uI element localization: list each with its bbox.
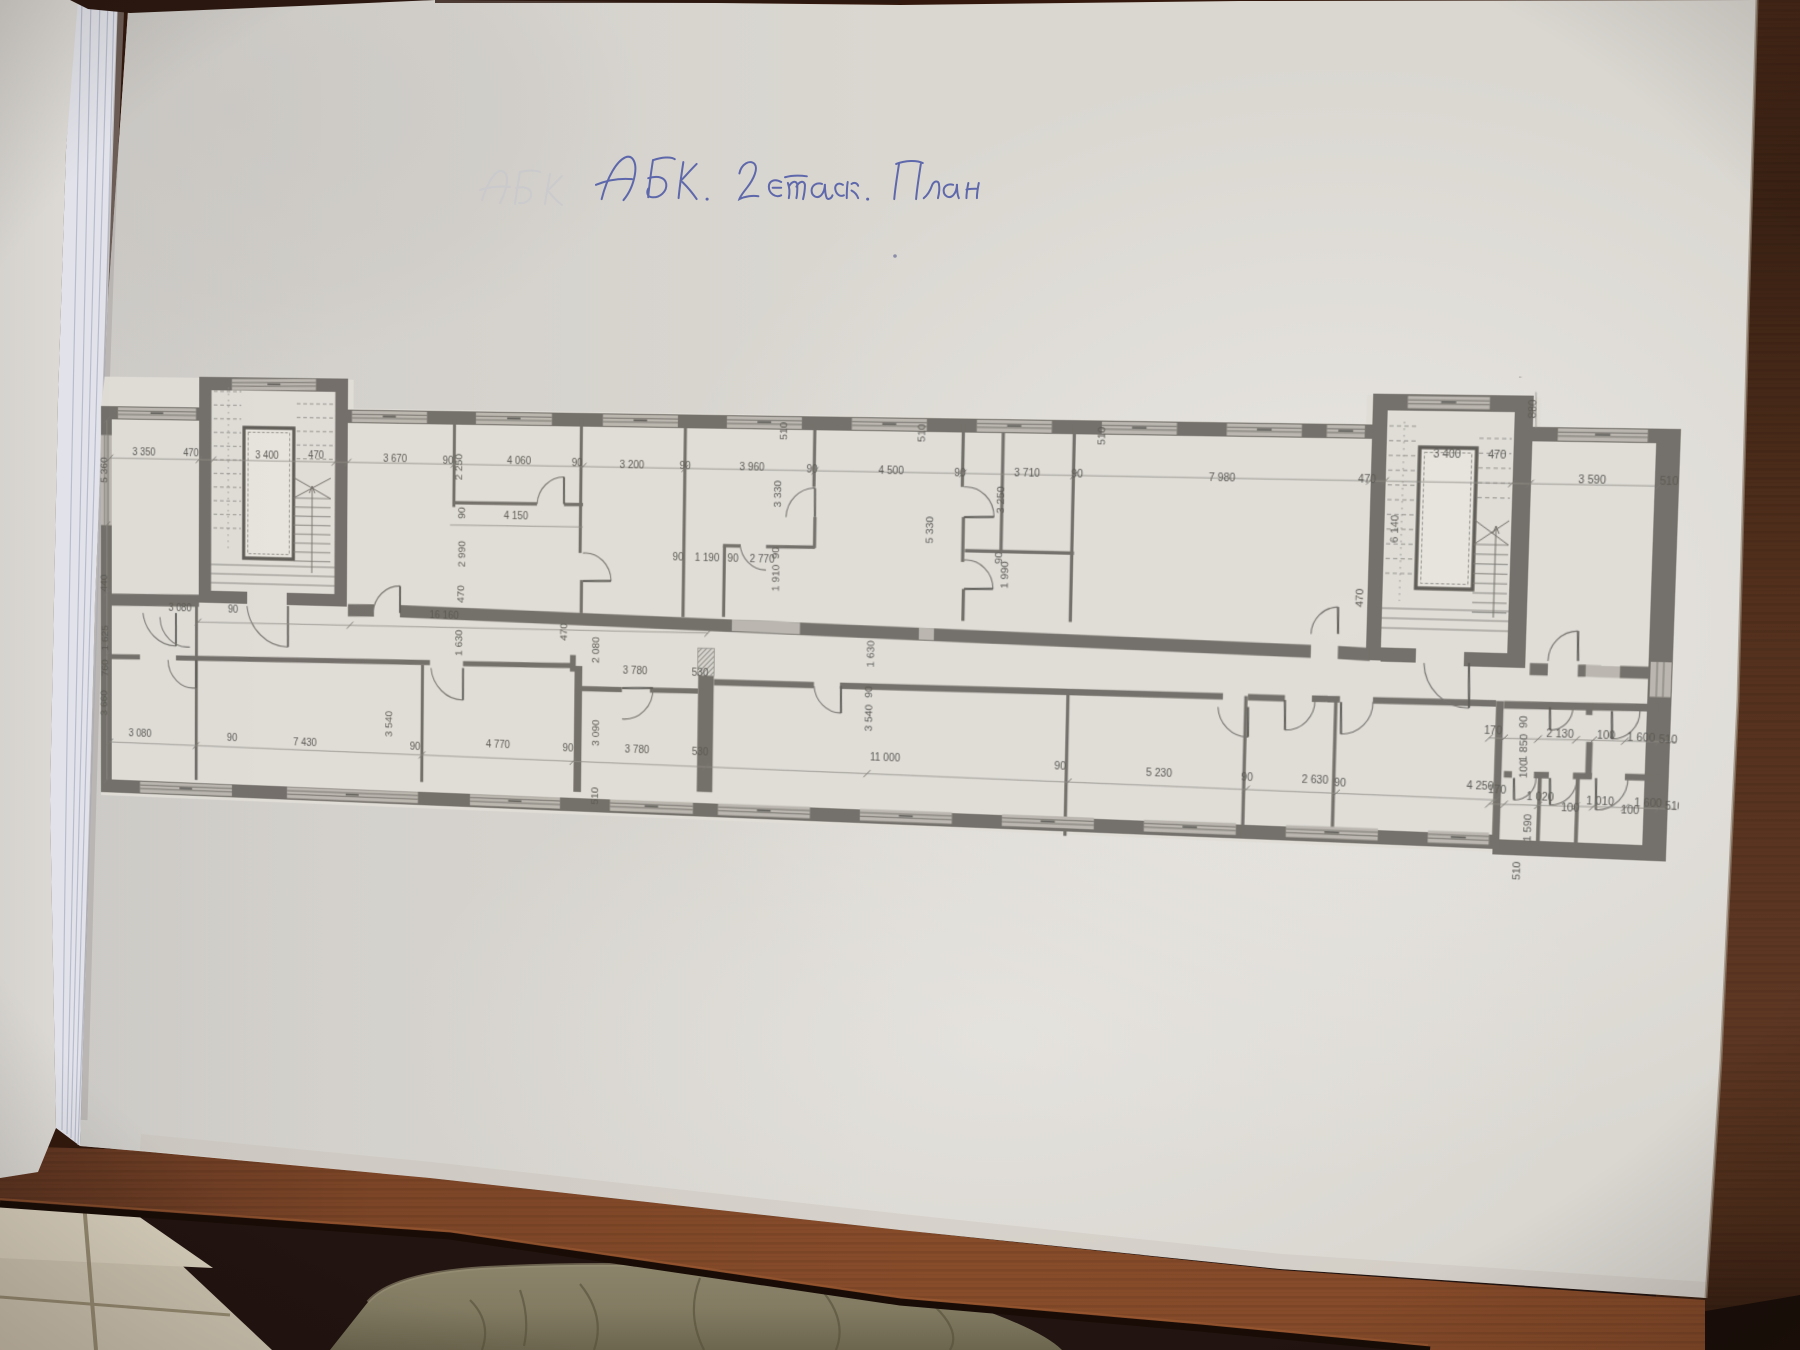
svg-text:510: 510 — [590, 786, 601, 805]
svg-text:11 000: 11 000 — [870, 752, 901, 765]
svg-text:100: 100 — [1561, 803, 1580, 816]
svg-text:3 350: 3 350 — [132, 446, 156, 458]
svg-text:3 080: 3 080 — [168, 602, 192, 614]
svg-text:2 990: 2 990 — [457, 540, 468, 567]
svg-text:90: 90 — [443, 455, 454, 467]
svg-text:3 250: 3 250 — [995, 486, 1007, 514]
svg-text:3 670: 3 670 — [383, 453, 408, 465]
svg-text:510: 510 — [916, 423, 928, 442]
svg-text:470: 470 — [1358, 474, 1377, 487]
svg-text:90: 90 — [1241, 772, 1254, 785]
svg-text:510: 510 — [1096, 426, 1108, 445]
svg-text:2 080: 2 080 — [591, 636, 602, 663]
svg-text:3 960: 3 960 — [739, 462, 765, 475]
svg-text:3 780: 3 780 — [623, 665, 648, 678]
svg-text:880: 880 — [1527, 399, 1540, 419]
svg-text:2 630: 2 630 — [1302, 774, 1330, 787]
svg-text:3 090: 3 090 — [591, 719, 602, 746]
svg-text:3 540: 3 540 — [863, 704, 875, 732]
svg-text:90: 90 — [457, 506, 468, 519]
svg-text:5 230: 5 230 — [1146, 767, 1173, 780]
svg-text:90: 90 — [1071, 469, 1083, 482]
svg-text:170: 170 — [1488, 784, 1507, 797]
svg-text:470: 470 — [183, 447, 199, 459]
svg-text:470: 470 — [308, 450, 324, 462]
svg-text:3 780: 3 780 — [625, 744, 650, 757]
svg-text:170: 170 — [1484, 725, 1503, 738]
svg-text:3 400: 3 400 — [255, 450, 279, 462]
svg-text:1 600: 1 600 — [1627, 731, 1656, 745]
svg-text:1 630: 1 630 — [454, 629, 465, 656]
svg-text:100: 100 — [1518, 759, 1531, 779]
svg-text:90: 90 — [771, 546, 782, 559]
svg-text:1 190: 1 190 — [695, 552, 721, 565]
svg-text:4 150: 4 150 — [504, 510, 529, 522]
svg-text:5 360: 5 360 — [100, 456, 110, 483]
svg-text:470: 470 — [456, 585, 467, 603]
svg-text:90: 90 — [727, 553, 739, 565]
svg-text:440: 440 — [100, 574, 110, 592]
svg-text:510: 510 — [1659, 733, 1679, 746]
svg-text:90: 90 — [954, 467, 966, 479]
svg-text:530: 530 — [692, 667, 709, 679]
svg-text:3 330: 3 330 — [773, 480, 785, 508]
svg-text:90: 90 — [1334, 777, 1347, 790]
svg-text:6 140: 6 140 — [1389, 514, 1402, 543]
svg-text:1 010: 1 010 — [1586, 795, 1615, 809]
svg-text:510: 510 — [1511, 861, 1524, 881]
svg-text:1 850: 1 850 — [1518, 733, 1531, 762]
svg-text:5 330: 5 330 — [924, 516, 936, 544]
svg-text:3 660: 3 660 — [100, 689, 110, 715]
svg-text:1 990: 1 990 — [999, 561, 1011, 589]
svg-text:510: 510 — [779, 421, 791, 440]
svg-text:3 200: 3 200 — [620, 459, 645, 471]
svg-text:2 250: 2 250 — [454, 453, 465, 480]
svg-text:90: 90 — [563, 742, 574, 754]
svg-text:90: 90 — [679, 460, 691, 472]
svg-text:3 400: 3 400 — [1433, 449, 1461, 462]
svg-text:530: 530 — [692, 746, 709, 759]
svg-text:90: 90 — [672, 551, 684, 563]
svg-text:2 130: 2 130 — [1546, 727, 1575, 741]
svg-text:4 500: 4 500 — [878, 465, 904, 478]
svg-text:3 080: 3 080 — [129, 728, 152, 740]
svg-text:1 630: 1 630 — [865, 640, 877, 668]
svg-text:4 060: 4 060 — [507, 455, 532, 467]
svg-text:90: 90 — [572, 457, 584, 469]
svg-text:90: 90 — [228, 604, 239, 616]
svg-text:470: 470 — [559, 622, 570, 641]
svg-text:760: 760 — [101, 659, 111, 677]
svg-text:90: 90 — [864, 685, 876, 698]
svg-text:90: 90 — [1518, 715, 1531, 728]
svg-text:90: 90 — [410, 741, 421, 753]
svg-text:100: 100 — [1597, 730, 1617, 743]
svg-text:1 625: 1 625 — [101, 624, 111, 650]
svg-text:1 590: 1 590 — [1522, 813, 1535, 842]
svg-text:16 160: 16 160 — [429, 610, 459, 623]
svg-text:470: 470 — [1354, 588, 1367, 607]
svg-text:3 710: 3 710 — [1014, 468, 1041, 481]
svg-text:470: 470 — [1488, 450, 1507, 463]
svg-text:90: 90 — [806, 464, 818, 476]
svg-text:3 540: 3 540 — [384, 710, 395, 737]
svg-text:1 600: 1 600 — [1634, 797, 1663, 811]
svg-text:7 430: 7 430 — [293, 737, 317, 749]
svg-text:90: 90 — [227, 732, 238, 744]
svg-text:3 590: 3 590 — [1578, 474, 1607, 487]
svg-text:510: 510 — [1659, 476, 1679, 489]
svg-text:1 910: 1 910 — [771, 564, 783, 592]
svg-text:1 020: 1 020 — [1526, 791, 1555, 805]
svg-text:90: 90 — [1054, 761, 1066, 774]
svg-text:7 980: 7 980 — [1209, 472, 1237, 485]
svg-text:4 770: 4 770 — [486, 739, 511, 752]
